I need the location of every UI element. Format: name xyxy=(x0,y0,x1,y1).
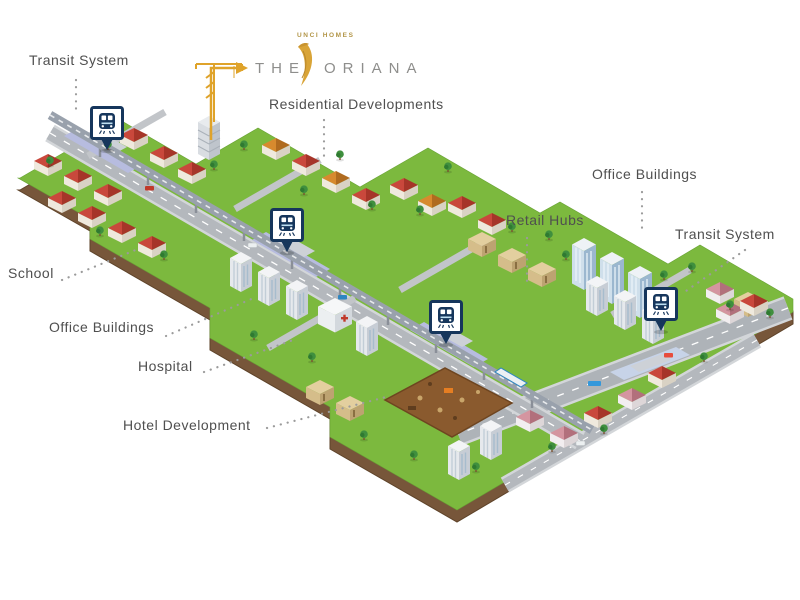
label-residential-developments: Residential Developments xyxy=(269,96,444,112)
label-hotel-development: Hotel Development xyxy=(123,417,251,433)
label-transit-system-right: Transit System xyxy=(675,226,775,242)
masterplan-infographic: UNCI HOMES THE ORIANA Transit System Res… xyxy=(0,0,800,600)
label-hospital: Hospital xyxy=(138,358,193,374)
label-office-buildings-left: Office Buildings xyxy=(49,319,154,335)
golden-leaf-icon xyxy=(293,42,321,88)
label-school: School xyxy=(8,265,54,281)
label-office-buildings-right: Office Buildings xyxy=(592,166,697,182)
label-transit-system-top: Transit System xyxy=(29,52,129,68)
label-retail-hubs: Retail Hubs xyxy=(506,212,584,228)
city-map-illustration xyxy=(0,0,800,600)
brand-logo-oriana: ORIANA xyxy=(324,60,424,77)
brand-developer-name: UNCI HOMES xyxy=(297,32,355,39)
construction-crane xyxy=(196,64,242,122)
